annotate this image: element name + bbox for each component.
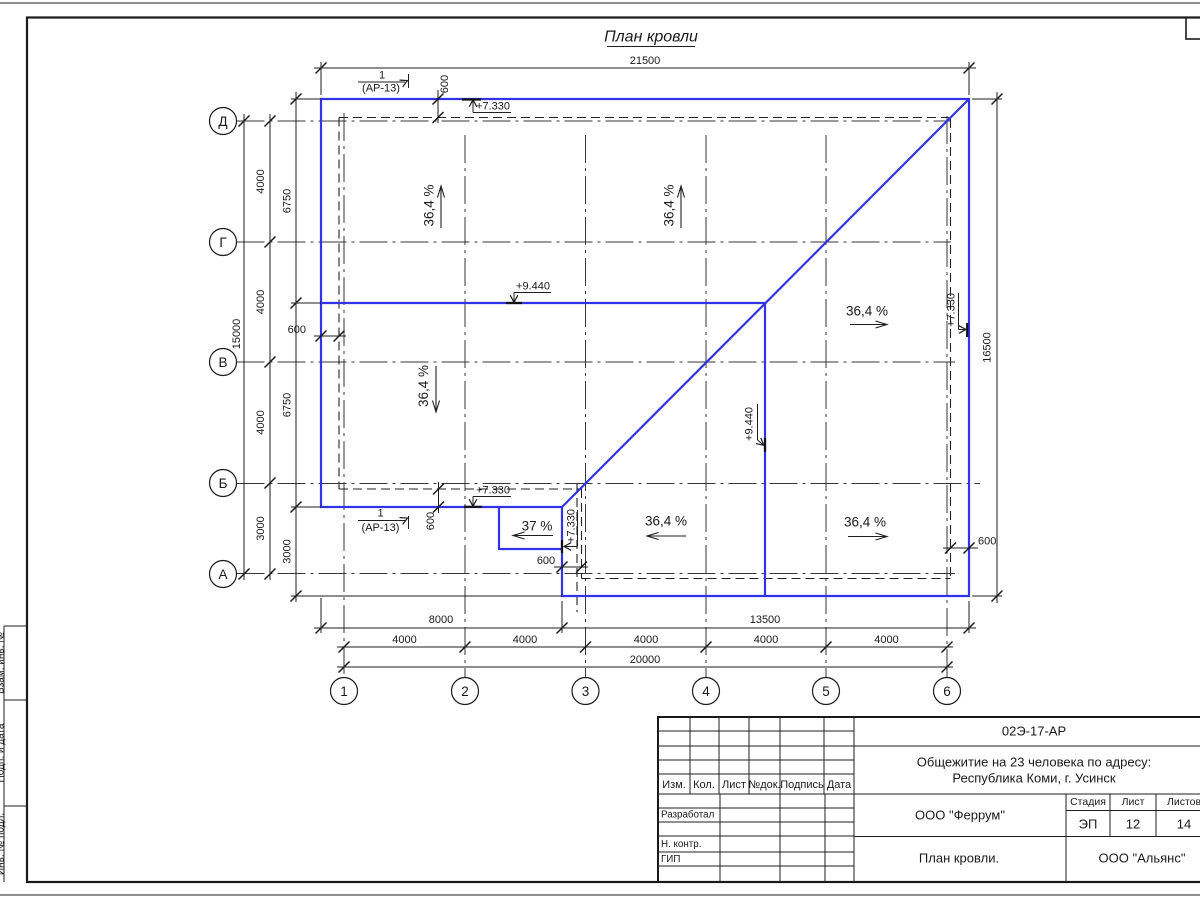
svg-text:36,4 %: 36,4 % — [422, 184, 437, 226]
svg-text:Республика Коми, г. Усинск: Республика Коми, г. Усинск — [952, 771, 1115, 786]
svg-text:3: 3 — [582, 684, 590, 699]
svg-text:ЭП: ЭП — [1079, 817, 1098, 832]
svg-text:Инв. № подл.: Инв. № подл. — [0, 813, 7, 875]
svg-text:ООО "Феррум": ООО "Феррум" — [915, 808, 1005, 823]
svg-text:6750: 6750 — [282, 393, 294, 417]
svg-text:6750: 6750 — [282, 189, 294, 213]
svg-text:Дата: Дата — [827, 779, 852, 791]
svg-text:4000: 4000 — [392, 634, 416, 646]
svg-text:2: 2 — [461, 684, 469, 699]
svg-text:Б: Б — [219, 476, 228, 491]
svg-text:36,4 %: 36,4 % — [416, 365, 431, 407]
svg-text:1: 1 — [379, 70, 385, 82]
svg-text:36,4 %: 36,4 % — [662, 184, 677, 226]
svg-text:600: 600 — [425, 512, 437, 530]
svg-text:(АР-13): (АР-13) — [362, 83, 400, 95]
svg-text:36,4 %: 36,4 % — [844, 515, 886, 530]
svg-text:16500: 16500 — [982, 332, 994, 363]
svg-text:№док.: №док. — [748, 779, 780, 791]
svg-text:600: 600 — [978, 536, 996, 548]
svg-text:4000: 4000 — [255, 290, 267, 314]
svg-text:02Э-17-АР: 02Э-17-АР — [1002, 724, 1066, 739]
svg-text:Лист: Лист — [1122, 796, 1145, 808]
svg-text:+7.330: +7.330 — [476, 485, 510, 497]
svg-text:4000: 4000 — [513, 634, 537, 646]
svg-text:Г: Г — [219, 235, 227, 250]
svg-text:4000: 4000 — [634, 634, 658, 646]
svg-text:Взам. инв. №: Взам. инв. № — [0, 632, 7, 694]
svg-text:6: 6 — [943, 684, 951, 699]
svg-text:3000: 3000 — [255, 516, 267, 540]
svg-text:5: 5 — [822, 684, 830, 699]
svg-text:3000: 3000 — [282, 539, 294, 563]
svg-text:А: А — [218, 567, 227, 582]
svg-text:Кол.: Кол. — [693, 779, 715, 791]
svg-text:Д: Д — [218, 114, 227, 129]
svg-text:4000: 4000 — [754, 634, 778, 646]
svg-text:4000: 4000 — [255, 410, 267, 434]
svg-text:8000: 8000 — [429, 614, 453, 626]
svg-text:Подп. и дата: Подп. и дата — [0, 723, 7, 782]
svg-text:+7.330: +7.330 — [566, 509, 578, 543]
svg-text:36,4 %: 36,4 % — [645, 514, 687, 529]
svg-text:ГИП: ГИП — [661, 854, 680, 865]
svg-text:ООО "Альянс": ООО "Альянс" — [1099, 851, 1186, 866]
svg-text:15000: 15000 — [231, 319, 243, 350]
svg-text:Изм.: Изм. — [662, 779, 686, 791]
svg-text:600: 600 — [537, 555, 555, 567]
svg-text:4: 4 — [702, 684, 710, 699]
svg-text:600: 600 — [439, 75, 451, 93]
svg-text:21500: 21500 — [630, 55, 661, 67]
svg-text:+7.330: +7.330 — [476, 101, 510, 113]
svg-text:14: 14 — [1177, 817, 1191, 832]
svg-text:12: 12 — [1126, 817, 1140, 832]
svg-text:Разработал: Разработал — [661, 810, 715, 821]
svg-text:1: 1 — [340, 684, 348, 699]
svg-text:1: 1 — [377, 508, 383, 520]
svg-text:37 %: 37 % — [522, 519, 553, 534]
svg-text:+7.330: +7.330 — [946, 293, 958, 327]
svg-text:Лист: Лист — [722, 779, 746, 791]
svg-text:В: В — [218, 355, 227, 370]
svg-text:План кровли.: План кровли. — [919, 851, 999, 866]
svg-text:Листов: Листов — [1167, 796, 1200, 808]
svg-text:4000: 4000 — [255, 169, 267, 193]
svg-text:+9.440: +9.440 — [744, 407, 756, 441]
svg-text:Стадия: Стадия — [1070, 796, 1106, 808]
svg-text:36,4 %: 36,4 % — [846, 304, 888, 319]
svg-text:600: 600 — [288, 324, 306, 336]
svg-text:Общежитие на 23 человека по ад: Общежитие на 23 человека по адресу: — [917, 755, 1151, 770]
svg-text:(АР-13): (АР-13) — [362, 522, 400, 534]
svg-text:План кровли: План кровли — [604, 29, 698, 46]
svg-text:+9.440: +9.440 — [516, 281, 550, 293]
svg-text:20000: 20000 — [630, 654, 661, 666]
svg-text:13500: 13500 — [750, 614, 781, 626]
svg-text:4000: 4000 — [874, 634, 898, 646]
svg-text:Н. контр.: Н. контр. — [661, 839, 701, 850]
svg-text:Подпись: Подпись — [780, 779, 824, 791]
